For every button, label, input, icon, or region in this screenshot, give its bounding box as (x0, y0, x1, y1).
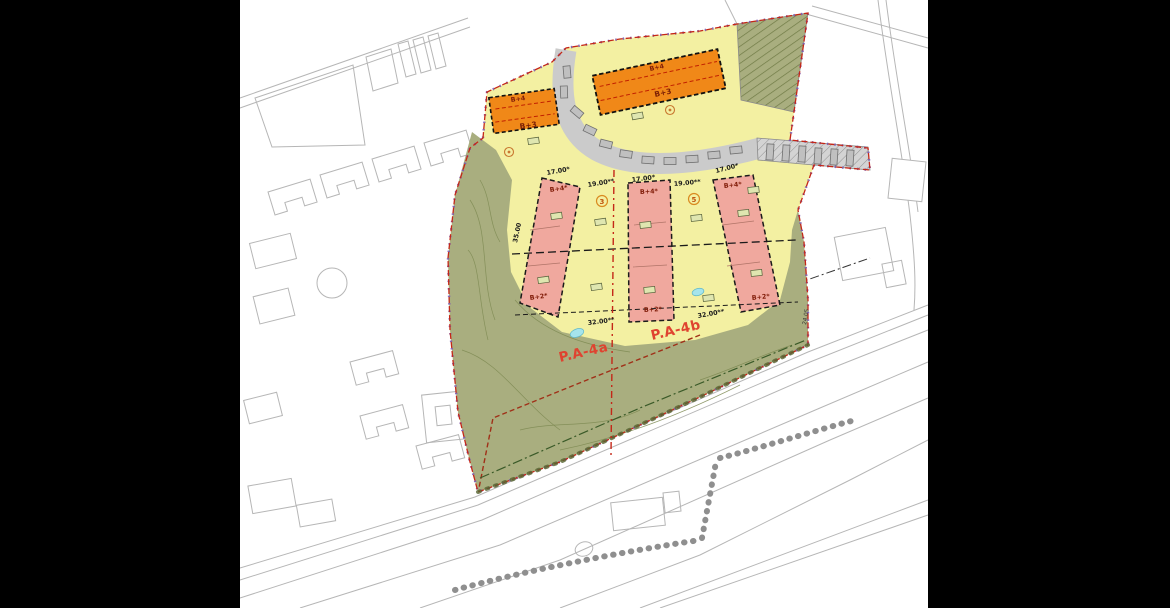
letterbox-right (928, 0, 1170, 608)
svg-text:3: 3 (600, 198, 605, 206)
svg-text:5: 5 (692, 196, 697, 204)
site-plan-screenshot: B+4 B+3 B+4 B+3 B+4* B+2* B+4* B+2* B+4*… (0, 0, 1170, 608)
plan-area: B+4 B+3 B+4 B+3 B+4* B+2* B+4* B+2* B+4*… (448, 13, 870, 492)
tree-row (720, 420, 855, 458)
plot-2 (628, 180, 674, 322)
basemap-building (255, 65, 365, 147)
plot-strips (520, 175, 780, 322)
plot-2-lower-label: B+2* (644, 305, 663, 314)
plot-2-upper-label: B+4* (640, 187, 659, 196)
letterbox-left (0, 0, 240, 608)
tree-row (702, 462, 716, 538)
zone-green-hatched (737, 13, 808, 112)
